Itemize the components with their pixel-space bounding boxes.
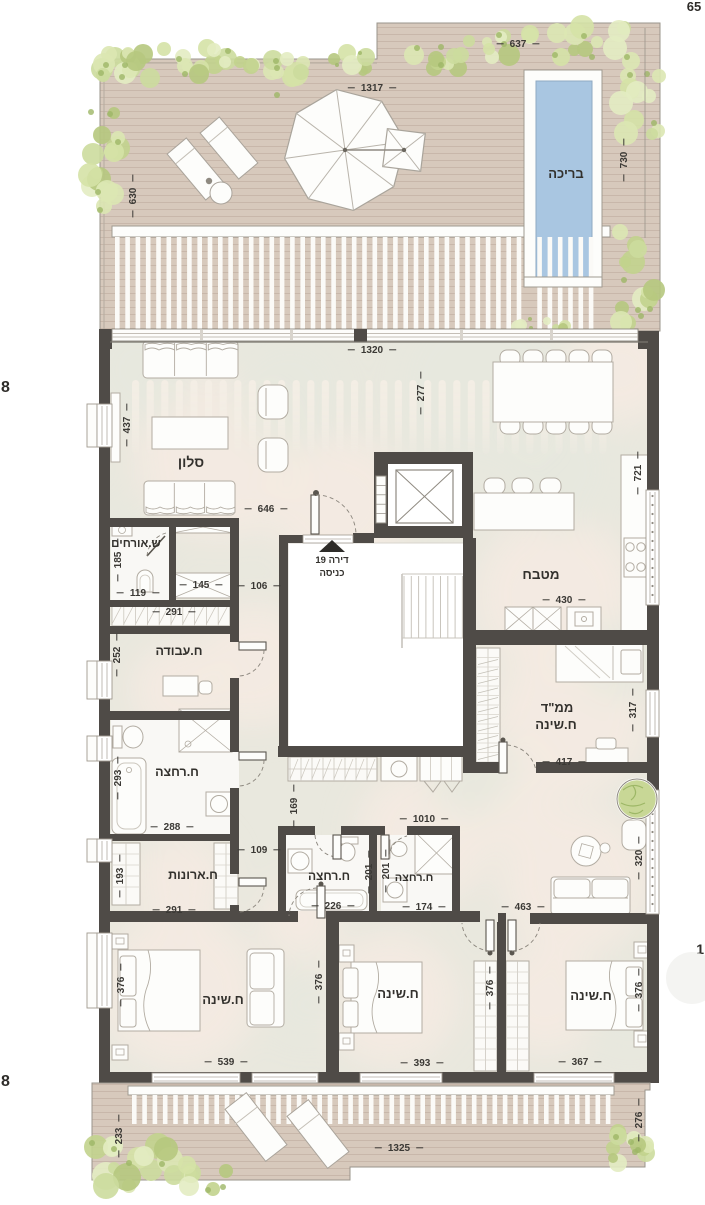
svg-text:417: 417	[556, 757, 573, 768]
svg-text:מטבח: מטבח	[522, 567, 559, 582]
svg-text:721: 721	[633, 464, 644, 481]
svg-text:ממ"ד: ממ"ד	[541, 700, 574, 715]
svg-text:430: 430	[556, 595, 573, 606]
svg-text:463: 463	[515, 902, 532, 913]
svg-text:201: 201	[364, 863, 375, 880]
svg-text:ח.רחצה: ח.רחצה	[395, 872, 434, 884]
svg-text:ח.שינה: ח.שינה	[202, 992, 244, 1007]
svg-text:בריכה: בריכה	[548, 166, 583, 181]
svg-text:291: 291	[166, 905, 183, 916]
svg-text:ח.שינה: ח.שינה	[377, 986, 419, 1001]
svg-text:106: 106	[251, 581, 268, 592]
svg-text:8: 8	[1, 1073, 10, 1090]
svg-text:637: 637	[510, 39, 527, 50]
svg-text:317: 317	[628, 701, 639, 718]
svg-text:185: 185	[113, 551, 124, 568]
svg-text:ח.רחצה: ח.רחצה	[155, 765, 199, 779]
svg-text:סלון: סלון	[178, 454, 204, 470]
svg-text:ח.שינה: ח.שינה	[535, 717, 577, 732]
svg-text:437: 437	[122, 416, 133, 433]
svg-text:174: 174	[416, 902, 433, 913]
svg-text:233: 233	[114, 1127, 125, 1144]
svg-text:ח.רחצה: ח.רחצה	[308, 869, 350, 883]
svg-text:376: 376	[116, 976, 127, 993]
svg-text:145: 145	[193, 580, 210, 591]
svg-text:367: 367	[572, 1057, 589, 1068]
svg-text:320: 320	[634, 849, 645, 866]
svg-text:דירה 19: דירה 19	[315, 555, 349, 566]
svg-text:630: 630	[128, 187, 139, 204]
svg-text:291: 291	[166, 607, 183, 618]
svg-text:כניסה: כניסה	[320, 568, 345, 579]
svg-text:1010: 1010	[413, 814, 436, 825]
svg-text:288: 288	[164, 822, 181, 833]
svg-text:201: 201	[381, 862, 392, 879]
svg-text:ח.עבודה: ח.עבודה	[155, 644, 202, 658]
svg-text:ח.ארונות: ח.ארונות	[168, 868, 218, 882]
svg-text:1317: 1317	[361, 83, 384, 94]
svg-text:376: 376	[485, 979, 496, 996]
svg-text:376: 376	[314, 973, 325, 990]
svg-text:65: 65	[687, 0, 701, 14]
svg-text:293: 293	[113, 769, 124, 786]
svg-text:8: 8	[1, 379, 10, 396]
svg-text:ש.אורחים: ש.אורחים	[111, 538, 161, 550]
svg-text:169: 169	[289, 797, 300, 814]
svg-text:ח.שינה: ח.שינה	[570, 988, 612, 1003]
svg-text:252: 252	[112, 646, 123, 663]
svg-text:376: 376	[634, 981, 645, 998]
svg-text:393: 393	[414, 1058, 431, 1069]
svg-text:539: 539	[218, 1057, 235, 1068]
svg-text:276: 276	[634, 1111, 645, 1128]
svg-text:646: 646	[258, 504, 275, 515]
svg-text:119: 119	[130, 588, 147, 599]
svg-text:109: 109	[251, 845, 268, 856]
svg-text:193: 193	[115, 867, 126, 884]
svg-text:1320: 1320	[361, 345, 384, 356]
svg-text:226: 226	[325, 901, 342, 912]
svg-text:277: 277	[416, 384, 427, 401]
svg-text:730: 730	[619, 151, 630, 168]
svg-text:1325: 1325	[388, 1143, 411, 1154]
